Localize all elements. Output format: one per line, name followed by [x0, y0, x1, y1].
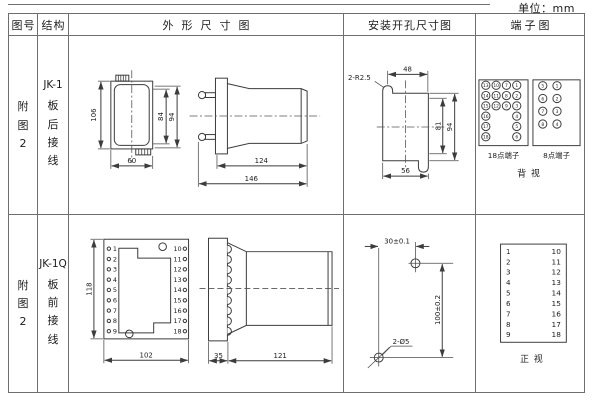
terminal-number: 9 [113, 327, 117, 335]
dim-124: 124 [255, 156, 269, 164]
rear-view-label: 背视 [517, 167, 544, 179]
row2-mounting-cell: 30±0.1 100±0.2 2-Ø5 [344, 215, 476, 392]
terminal-number: 8 [505, 93, 508, 99]
row1-structure-cell: JK-1 板 后 接 线 [38, 36, 69, 215]
row2-structure-cell: JK-1Q 板 前 接 线 [38, 215, 69, 392]
terminal-number: 1 [113, 245, 117, 253]
header-mounting-label: 安装开孔尺寸图 [368, 17, 452, 33]
row1-figure-cell: 附 图 2 [9, 36, 38, 215]
structure-char: 板 [47, 100, 58, 111]
structure-char: 前 [48, 297, 59, 308]
dim-102: 102 [140, 351, 153, 359]
figure-char: 2 [20, 316, 27, 327]
terminal-number: 11 [173, 255, 181, 263]
header-structure-label: 结构 [42, 17, 66, 33]
dim-84: 84 [157, 111, 165, 120]
terminal-number: 3 [556, 109, 559, 115]
dim-48: 48 [403, 65, 412, 73]
terminal-number: 5 [541, 83, 544, 89]
structure-char: 接 [47, 137, 58, 148]
terminal-number: 5 [515, 124, 518, 130]
terminal-number: 7 [541, 109, 544, 115]
terminal-number: 5 [113, 286, 117, 294]
dim-118: 118 [85, 282, 93, 295]
header-cell-outline: 外形尺寸图 [69, 14, 344, 36]
dim-60: 60 [127, 156, 136, 164]
terminal-number: 14 [483, 93, 489, 99]
figure-char: 附 [18, 101, 29, 112]
dim-35: 35 [214, 352, 223, 360]
top-rule [8, 4, 490, 5]
row2-outline-cell: 1 2 3 4 5 6 7 8 9 10 11 12 13 14 15 16 1 [69, 215, 344, 392]
terminal-number: 11 [552, 257, 561, 266]
row1-figure-text: 附 图 2 [18, 98, 29, 153]
terminal-18-label: 18点端子 [488, 150, 519, 159]
row2-outline-drawing: 1 2 3 4 5 6 7 8 9 10 11 12 13 14 15 16 1 [69, 215, 343, 392]
slot-radius-label: 2-R2.5 [348, 73, 371, 81]
terminal-number: 15 [173, 297, 181, 305]
terminal-strip: 110 211 312 413 514 615 716 817 918 [501, 244, 567, 342]
terminal-number: 11 [493, 93, 499, 99]
terminal-number: 10 [493, 83, 499, 89]
terminal-number: 16 [483, 113, 489, 119]
row2-figure-text: 附 图 2 [18, 276, 29, 331]
terminal-number: 12 [493, 103, 499, 109]
terminal-number: 16 [552, 309, 562, 318]
terminal-number: 7 [506, 309, 511, 318]
holes-label: 2-Ø5 [393, 338, 410, 346]
relay-front-view [111, 70, 153, 163]
terminal-number: 16 [173, 307, 181, 315]
dim-94: 94 [446, 121, 454, 130]
terminal-number: 6 [515, 134, 518, 140]
header-outline-label: 外形尺寸图 [163, 17, 258, 33]
terminal-number: 4 [515, 113, 518, 119]
terminal-number: 9 [506, 330, 511, 339]
terminal-number: 4 [556, 121, 559, 127]
dim-100: 100±0.2 [434, 295, 442, 325]
terminal-number: 1 [515, 83, 518, 89]
terminal-number: 7 [113, 307, 117, 315]
terminal-block-8: 5 1 6 2 7 3 8 4 [533, 79, 580, 145]
terminal-number: 15 [483, 103, 489, 109]
row2-mounting-drawing: 30±0.1 100±0.2 2-Ø5 [344, 215, 475, 392]
dim-56: 56 [401, 167, 410, 175]
front-view-dimensions: 106 84 94 60 [90, 81, 181, 169]
header-cell-figure: 图号 [9, 14, 38, 36]
cutout-dimensions: 2-R2.5 48 81 94 56 [348, 65, 459, 179]
model-label: JK-1Q [39, 259, 67, 270]
terminal-number: 1 [506, 247, 511, 256]
side-view-dimensions: 124 146 [198, 141, 307, 186]
structure-char: 线 [47, 155, 58, 166]
relay-front-view: 1 2 3 4 5 6 7 8 9 10 11 12 13 14 15 16 1 [104, 239, 189, 339]
terminal-number: 10 [173, 245, 181, 253]
terminal-number: 13 [483, 83, 489, 89]
figure-char: 图 [18, 298, 29, 309]
structure-char: 接 [48, 315, 59, 326]
terminal-number: 3 [113, 266, 117, 274]
terminal-number: 18 [552, 330, 562, 339]
header-cell-terminal: 端子图 [476, 14, 584, 36]
terminal-number: 4 [506, 278, 511, 287]
terminal-number: 13 [552, 278, 562, 287]
structure-char: 板 [48, 279, 59, 290]
terminal-number: 2 [556, 96, 559, 102]
dim-121: 121 [274, 352, 287, 360]
terminal-number: 13 [173, 276, 181, 284]
terminal-number: 12 [173, 266, 181, 274]
terminal-number: 2 [515, 93, 518, 99]
dim-81: 81 [434, 121, 442, 130]
hole-dimensions: 30±0.1 100±0.2 2-Ø5 [365, 237, 442, 356]
terminal-number: 17 [483, 124, 489, 130]
terminal-number: 8 [113, 317, 117, 325]
terminal-number: 8 [541, 121, 544, 127]
terminal-number: 14 [173, 286, 181, 294]
terminal-number: 18 [483, 134, 489, 140]
terminal-number: 6 [506, 299, 511, 308]
terminal-number: 1 [556, 83, 559, 89]
terminal-number: 2 [506, 257, 511, 266]
dim-106: 106 [90, 108, 98, 121]
terminal-number: 10 [552, 247, 562, 256]
row1-terminal-diagram: 13 10 7 1 14 11 8 2 15 12 9 3 16 4 17 5 [476, 36, 584, 215]
row1-outline-drawing: 106 84 94 60 [69, 36, 343, 215]
terminal-number: 5 [506, 289, 511, 298]
terminal-number: 7 [505, 83, 508, 89]
row2-figure-cell: 附 图 2 [9, 215, 38, 392]
row1-terminal-cell: 13 10 7 1 14 11 8 2 15 12 9 3 16 4 17 5 [476, 36, 584, 215]
dimension-spec-table: 图号 结构 外形尺寸图 安装开孔尺寸图 端子图 附 图 2 JK-1 板 后 接… [8, 13, 585, 393]
terminal-number: 8 [506, 320, 511, 329]
header-figure-label: 图号 [12, 17, 36, 33]
row2-structure-text: JK-1Q 板 前 接 线 [39, 259, 67, 348]
manual-page: 单位：mm 图号 结构 外形尺寸图 安装开孔尺寸图 端子图 附 图 2 JK-1… [0, 0, 600, 400]
row1-mounting-cell: 2-R2.5 48 81 94 56 [344, 36, 476, 215]
terminal-8-label: 8点端子 [543, 150, 570, 159]
terminal-block-18: 13 10 7 1 14 11 8 2 15 12 9 3 16 4 17 5 [479, 79, 528, 145]
terminal-number: 2 [113, 255, 117, 263]
row2-terminal-cell: 110 211 312 413 514 615 716 817 918 正视 [476, 215, 584, 392]
terminal-number: 6 [541, 96, 544, 102]
relay-side-view [190, 78, 321, 154]
figure-char: 2 [20, 138, 27, 149]
terminal-number: 9 [505, 103, 508, 109]
relay-side-view [200, 238, 339, 341]
dim-146: 146 [245, 174, 258, 182]
row1-outline-cell: 106 84 94 60 [69, 36, 344, 215]
terminal-number: 3 [515, 103, 518, 109]
figure-char: 图 [18, 120, 29, 131]
terminal-number: 15 [552, 299, 562, 308]
dim-94: 94 [168, 112, 176, 121]
model-label: JK-1 [43, 80, 62, 91]
structure-char: 线 [48, 334, 59, 345]
terminal-number: 17 [173, 317, 181, 325]
terminal-number: 3 [506, 268, 511, 277]
terminal-number: 18 [173, 327, 181, 335]
row2-terminal-diagram: 110 211 312 413 514 615 716 817 918 正视 [476, 215, 584, 392]
terminal-number: 12 [552, 268, 561, 277]
row1-mounting-drawing: 2-R2.5 48 81 94 56 [344, 36, 475, 215]
terminal-number: 4 [113, 276, 117, 284]
front-view-label: 正视 [520, 353, 547, 365]
header-cell-structure: 结构 [38, 14, 69, 36]
header-terminal-label: 端子图 [511, 17, 553, 33]
figure-char: 附 [18, 280, 29, 291]
dim-30: 30±0.1 [384, 237, 410, 245]
terminal-number: 14 [552, 289, 562, 298]
terminal-number: 6 [113, 297, 117, 305]
terminal-number: 17 [552, 320, 562, 329]
structure-char: 后 [47, 119, 58, 130]
row1-structure-text: JK-1 板 后 接 线 [43, 80, 62, 169]
header-cell-mounting: 安装开孔尺寸图 [344, 14, 476, 36]
